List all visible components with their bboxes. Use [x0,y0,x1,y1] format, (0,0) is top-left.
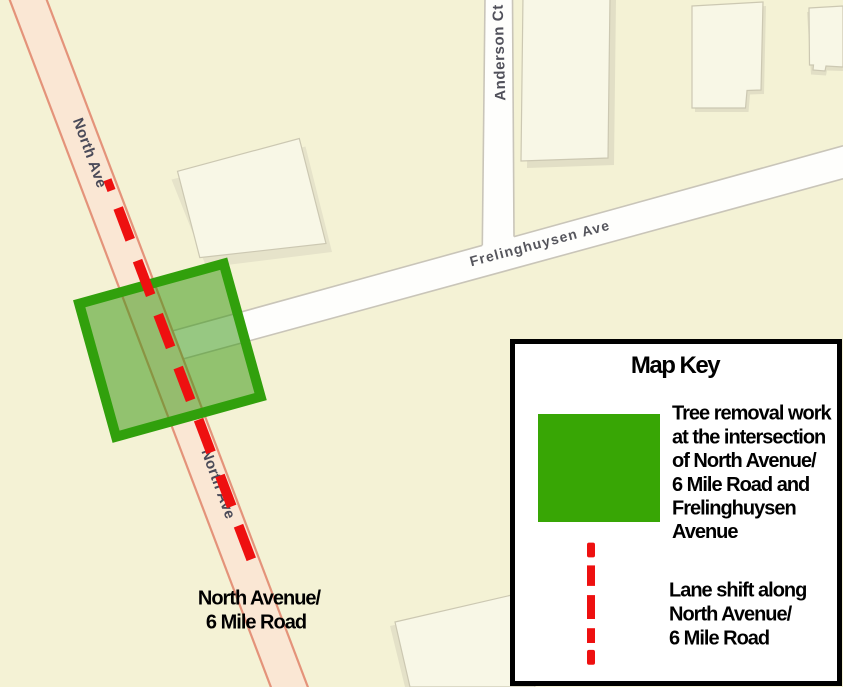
svg-text:Lane shift along: Lane shift along [669,580,806,602]
svg-text:Frelinghuysen: Frelinghuysen [672,498,796,520]
svg-text:Tree removal work: Tree removal work [672,403,833,425]
svg-text:at the intersection: at the intersection [672,426,825,448]
svg-text:North Avenue/: North Avenue/ [198,588,322,610]
svg-text:of North Avenue/: of North Avenue/ [672,450,817,472]
svg-text:North Avenue/: North Avenue/ [669,604,793,626]
svg-text:6 Mile Road and: 6 Mile Road and [672,474,809,496]
svg-text:Anderson Ct: Anderson Ct [490,4,510,101]
svg-text:6 Mile Road: 6 Mile Road [206,611,306,633]
svg-text:Map Key: Map Key [631,352,721,379]
svg-text:6 Mile Road: 6 Mile Road [669,627,769,649]
svg-text:Avenue: Avenue [672,521,738,543]
